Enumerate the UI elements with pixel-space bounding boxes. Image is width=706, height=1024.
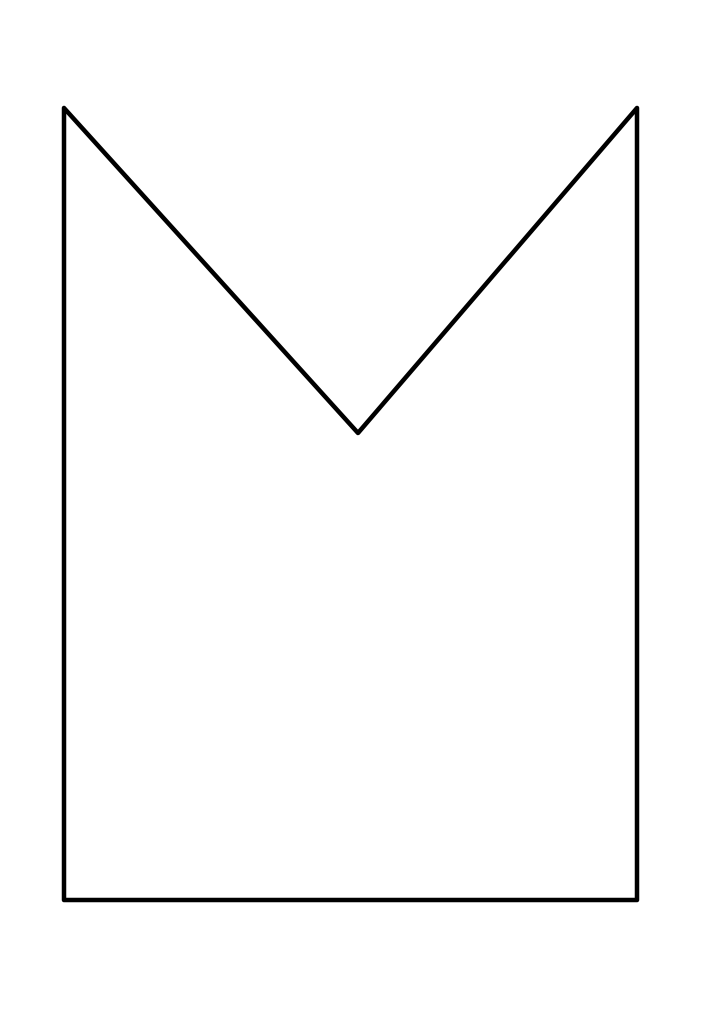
line-drawing: [0, 0, 706, 1024]
page-canvas: [0, 0, 706, 1024]
envelope-outline-shape: [64, 108, 637, 900]
